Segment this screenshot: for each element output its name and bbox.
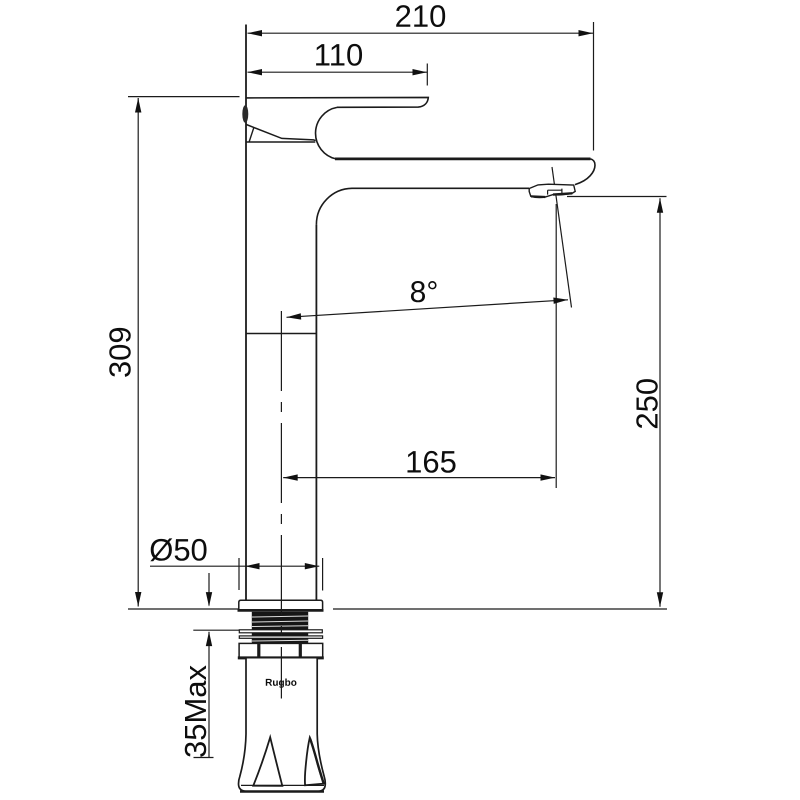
svg-text:210: 210 [395,0,447,34]
svg-text:110: 110 [314,37,363,72]
svg-text:165: 165 [405,444,457,479]
svg-text:35Max: 35Max [178,664,213,758]
svg-text:309: 309 [103,326,138,378]
svg-text:Ø50: Ø50 [149,532,208,567]
svg-text:8°: 8° [410,276,439,309]
svg-text:250: 250 [630,378,665,430]
